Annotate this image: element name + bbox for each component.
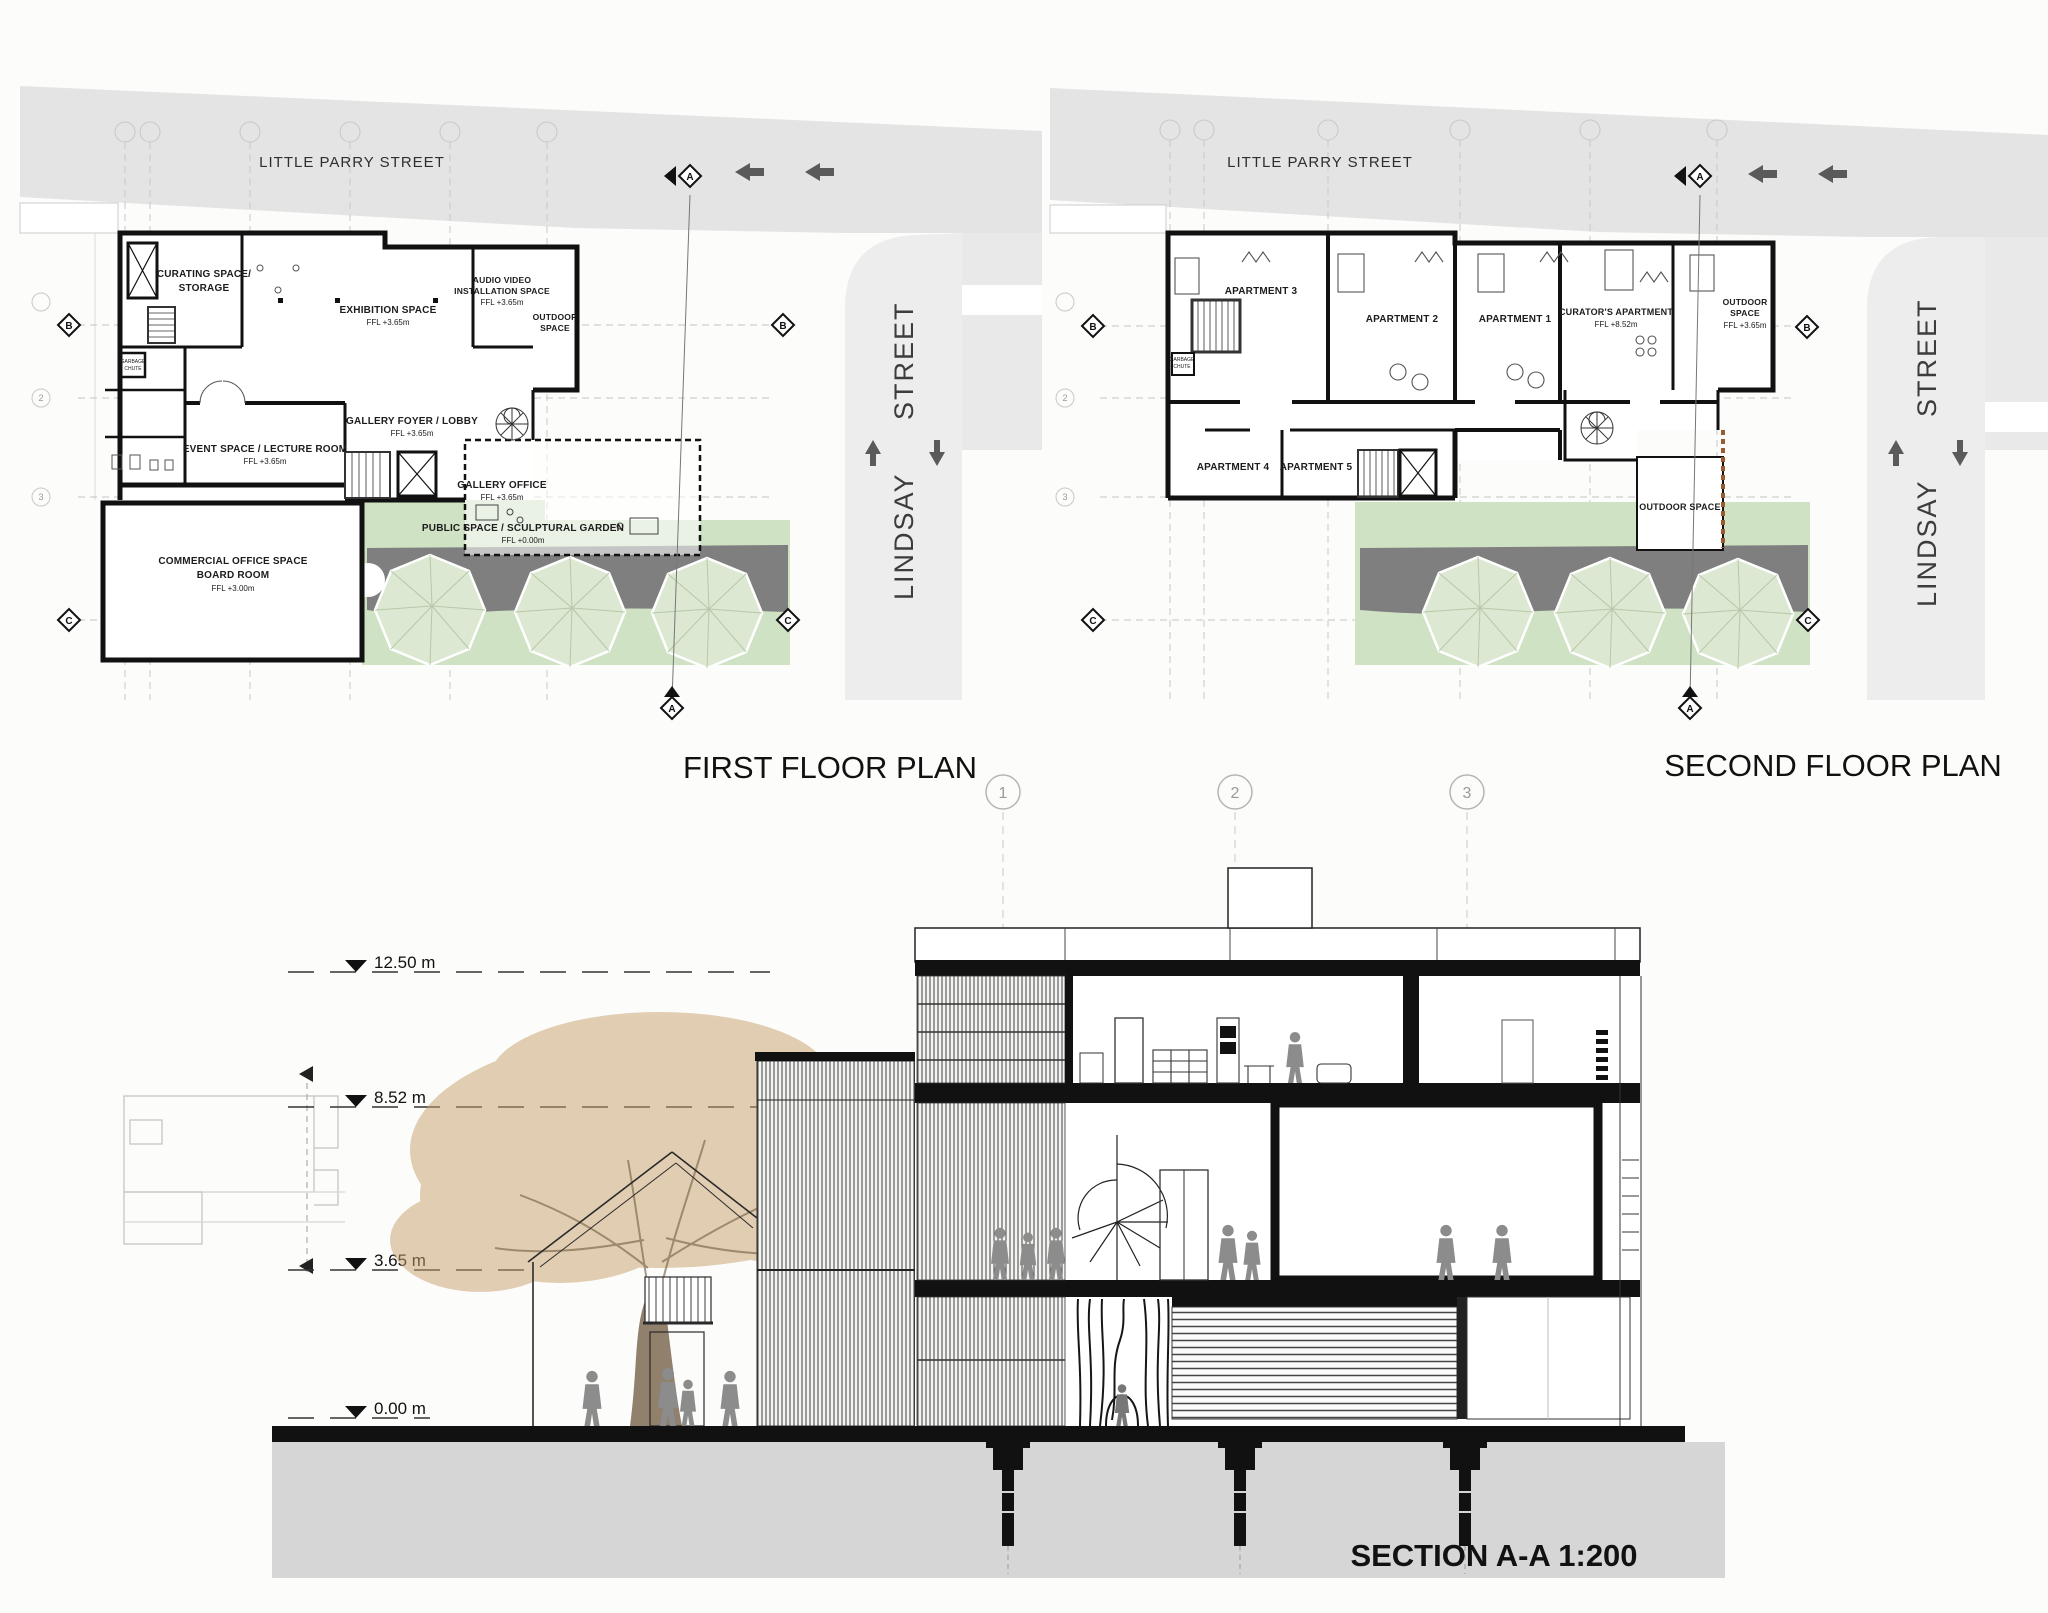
room-label-outdoor1-2: SPACE [540, 323, 570, 333]
p1-grid-c-left: C [65, 616, 72, 627]
p2-tree-2 [1555, 558, 1665, 668]
p2-grid-b-right: B [1803, 323, 1810, 334]
room-ffl-commercial: FFL +3.00m [211, 584, 254, 593]
section-grid-3: 3 [1463, 785, 1472, 802]
p1-grid-b-left: B [65, 321, 72, 332]
section-drawing: 1 2 3 12.50 m 8.52 m 3.65 m 0.00 m [124, 775, 1725, 1578]
parapet [915, 928, 1640, 962]
p1-garbage-label-2: CHUTE [124, 366, 142, 372]
p2-grid-b-left: B [1089, 322, 1096, 333]
room-label-event: EVENT SPACE / LECTURE ROOM [183, 444, 347, 455]
p2-street-label: STREET [1912, 298, 1942, 417]
p2-garden [1355, 502, 1810, 669]
section-key-plan [124, 1066, 345, 1274]
room-label-audio: AUDIO VIDEO [473, 275, 532, 285]
p2-section-marker-bottom: A [1686, 704, 1693, 715]
room-label-outdoor1: OUTDOOR [533, 312, 578, 322]
section-annex [755, 1052, 915, 1426]
house-balcony [643, 1277, 713, 1323]
section-grid-1: 1 [999, 785, 1008, 802]
p2-tree-1 [1423, 557, 1533, 667]
room-ffl-exhibition: FFL +3.65m [366, 318, 409, 327]
p2-grid-c-right: C [1804, 616, 1811, 627]
second-floor-plan: 2 3 [1050, 88, 2048, 783]
p2-grid-c-left: C [1089, 616, 1096, 627]
room-ffl-audio: FFL +3.65m [480, 298, 523, 307]
p2-spiral-stair [1581, 412, 1613, 444]
room-label-public: PUBLIC SPACE / SCULPTURAL GARDEN [422, 523, 624, 534]
room-ffl-foyer: FFL +3.65m [390, 429, 433, 438]
p1-section-marker-top: A [686, 172, 693, 183]
room-label-commercial-2: BOARD ROOM [197, 570, 270, 581]
p2-tree-3 [1683, 559, 1793, 669]
room-label-curating-2: STORAGE [179, 283, 230, 294]
room-label-apt1: APARTMENT 1 [1479, 314, 1552, 325]
room-label-foyer: GALLERY FOYER / LOBBY [346, 416, 478, 427]
section-title: SECTION A-A 1:200 [1350, 1538, 1637, 1573]
p1-street-label: STREET [889, 301, 919, 420]
roof-slab [915, 960, 1640, 976]
room-label-commercial: COMMERCIAL OFFICE SPACE [158, 556, 307, 567]
room-label-outdoor-low: OUTDOOR SPACE [1639, 502, 1720, 512]
room-ffl-outdoor-top: FFL +3.65m [1723, 321, 1766, 330]
room-label-curating: CURATING SPACE/ [157, 269, 251, 280]
first-floor-title: FIRST FLOOR PLAN [683, 750, 977, 785]
p2-garbage-label: GARBAGE [1170, 357, 1195, 363]
room-ffl-public: FFL +0.00m [501, 536, 544, 545]
room-label-audio-2: INSTALLATION SPACE [454, 286, 550, 296]
roller-screen [1172, 1307, 1457, 1419]
p1-lindsay-label: LINDSAY [889, 472, 919, 600]
section-building [915, 868, 1641, 1426]
p1-tree-1 [375, 555, 485, 665]
room-label-apt4: APARTMENT 4 [1197, 462, 1270, 473]
room-label-exhibition: EXHIBITION SPACE [340, 305, 437, 316]
p1-tree-2 [515, 557, 625, 667]
room-label-outdoor-top: OUTDOOR [1723, 297, 1768, 307]
room-label-curator: CURATOR'S APARTMENT [1559, 307, 1673, 317]
p1-parry-street-label: LITTLE PARRY STREET [259, 154, 445, 171]
second-floor-title: SECOND FLOOR PLAN [1664, 748, 2002, 783]
p1-section-marker-bottom: A [668, 704, 675, 715]
room-label-outdoor-top-2: SPACE [1730, 308, 1760, 318]
room-label-apt5: APARTMENT 5 [1280, 462, 1353, 473]
p2-grid-2-left: 2 [1062, 393, 1067, 403]
room-ffl-office: FFL +3.65m [480, 493, 523, 502]
p2-parry-street-label: LITTLE PARRY STREET [1227, 154, 1413, 171]
p1-grid-3-left: 3 [38, 492, 43, 502]
level-000: 0.00 m [374, 1399, 426, 1418]
room-ffl-event: FFL +3.65m [243, 457, 286, 466]
p2-section-marker-top: A [1696, 172, 1703, 183]
room-label-office: GALLERY OFFICE [457, 480, 547, 491]
roof-stair-box [1228, 868, 1312, 928]
first-floor-plan: 2 3 [20, 86, 1042, 785]
p1-grid-b-right: B [779, 321, 786, 332]
level-1250: 12.50 m [374, 953, 435, 972]
p2-lindsay-label: LINDSAY [1912, 479, 1942, 607]
p1-grid-2-left: 2 [38, 393, 43, 403]
p1-garbage-label: GARBAGE [121, 359, 146, 365]
blueprint-canvas: 2 3 [0, 0, 2048, 1613]
room-label-apt2: APARTMENT 2 [1366, 314, 1439, 325]
p1-spiral-stair [496, 408, 528, 440]
section-grid-2: 2 [1231, 785, 1240, 802]
p1-tree-3 [652, 558, 762, 668]
level-852: 8.52 m [374, 1088, 426, 1107]
louver-facade [917, 976, 1065, 1426]
p2-grid-3-left: 3 [1062, 492, 1067, 502]
room-ffl-curator: FFL +8.52m [1594, 320, 1637, 329]
p2-garbage-label-2: CHUTE [1173, 364, 1191, 370]
p1-grid-c-right: C [784, 616, 791, 627]
room-label-apt3: APARTMENT 3 [1225, 286, 1298, 297]
architectural-sheet: 2 3 [0, 0, 2048, 1613]
